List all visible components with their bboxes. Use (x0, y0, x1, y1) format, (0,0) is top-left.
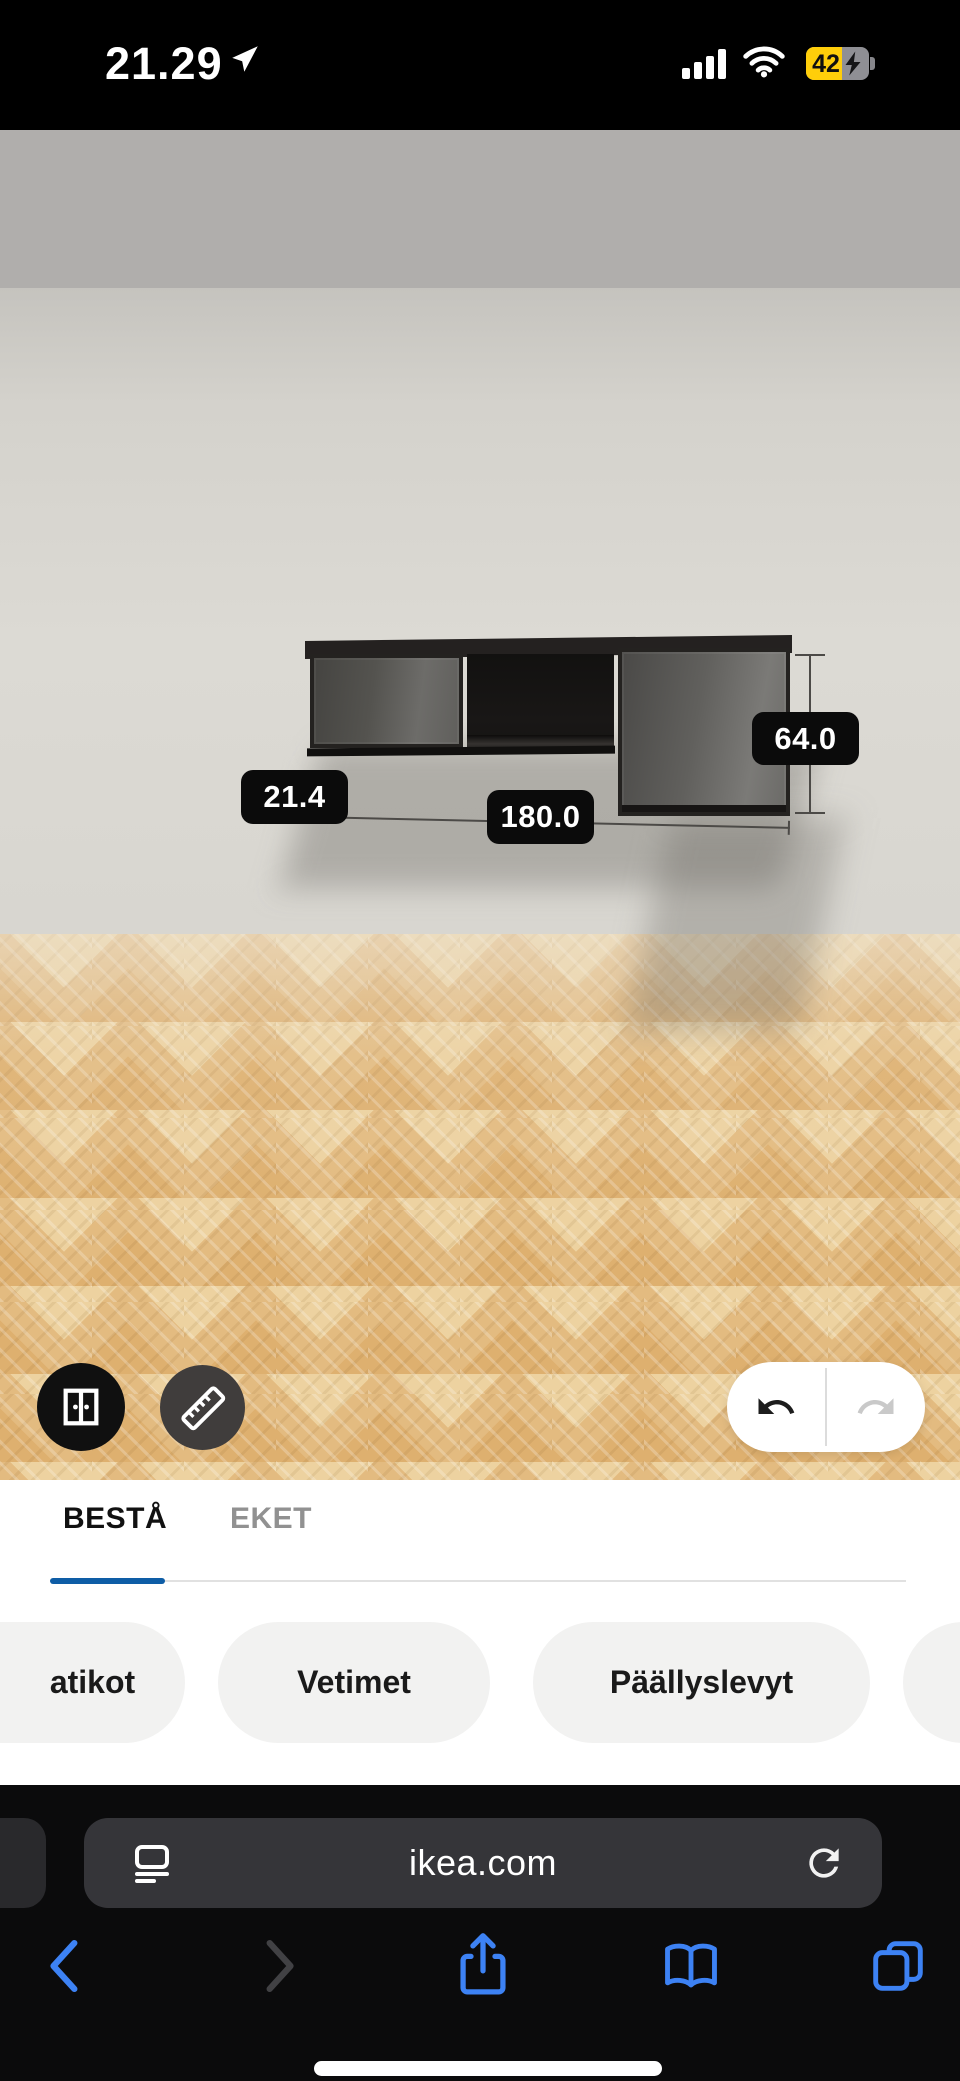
dimension-tick (795, 812, 825, 814)
clock: 21.29 (105, 38, 223, 90)
planner-3d-viewport[interactable]: 21.4 180.0 64.0 (0, 288, 960, 1480)
safari-bottom-bar: ikea.com (0, 1785, 960, 2081)
cabinet-doors-icon (58, 1384, 104, 1430)
tab-eket[interactable]: EKET (230, 1502, 312, 1536)
measure-button[interactable] (160, 1365, 245, 1450)
url-text: ikea.com (84, 1842, 882, 1884)
bookmarks-button[interactable] (646, 1921, 736, 2011)
adjacent-tab-peek[interactable] (0, 1818, 46, 1908)
page-settings-icon[interactable] (128, 1839, 176, 1892)
tab-besta[interactable]: BESTÅ (63, 1502, 167, 1536)
back-button[interactable] (21, 1921, 111, 2011)
undo-button[interactable] (727, 1362, 825, 1452)
undo-redo-group (727, 1362, 925, 1452)
forward-button[interactable] (233, 1921, 323, 2011)
address-bar[interactable]: ikea.com (84, 1818, 882, 1908)
category-pill-drawers[interactable]: atikot (0, 1622, 185, 1743)
planner-header: 1 2 230 ,00 € (0, 130, 960, 288)
toggle-doors-button[interactable] (37, 1363, 125, 1451)
cabinet-bottom-panel (307, 746, 615, 757)
redo-icon (855, 1386, 897, 1428)
width-measurement-label: 180.0 (487, 790, 594, 844)
undo-icon (755, 1386, 797, 1428)
battery-charging-icon: 42 (806, 47, 876, 80)
location-arrow-icon (228, 42, 262, 81)
category-pill-partial[interactable] (903, 1622, 960, 1743)
charging-bolt-icon (840, 50, 866, 80)
ruler-icon (177, 1382, 229, 1434)
cabinet-open-compartment[interactable] (467, 654, 614, 751)
product-sheet: BESTÅ EKET atikot Vetimet Päällyslevyt (0, 1480, 960, 1785)
status-bar: 21.29 42 (0, 0, 960, 130)
tab-track (50, 1580, 906, 1582)
home-indicator[interactable] (314, 2061, 662, 2076)
active-tab-indicator (50, 1578, 165, 1584)
wifi-icon (742, 45, 786, 83)
tabs-button[interactable] (853, 1921, 943, 2011)
battery-percent: 42 (808, 50, 844, 79)
cabinet-left-glass-door[interactable] (310, 654, 463, 748)
reload-icon[interactable] (802, 1841, 846, 1890)
dimension-tick (795, 654, 825, 656)
cellular-signal-icon (682, 48, 730, 79)
browser-toolbar (0, 1913, 960, 2023)
redo-button[interactable] (827, 1362, 925, 1452)
category-pill-top-panels[interactable]: Päällyslevyt (533, 1622, 870, 1743)
height-measurement-label: 64.0 (752, 712, 859, 765)
share-button[interactable] (438, 1921, 528, 2011)
iphone-screen: 21.29 42 (0, 0, 960, 2081)
depth-measurement-label: 21.4 (241, 770, 348, 824)
category-pill-handles[interactable]: Vetimet (218, 1622, 490, 1743)
